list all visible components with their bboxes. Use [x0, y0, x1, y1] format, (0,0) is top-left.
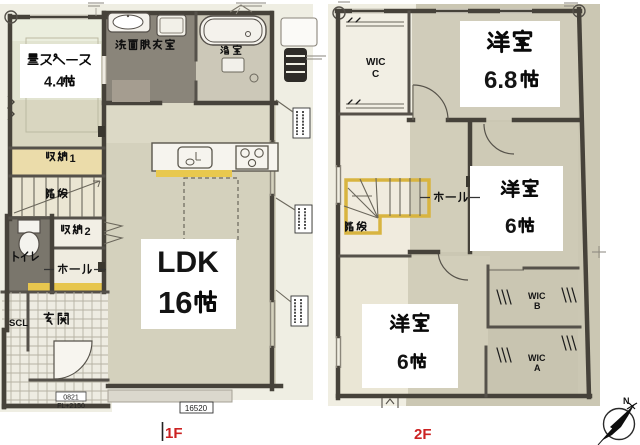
- svg-text:B: B: [534, 301, 541, 311]
- svg-text:C: C: [372, 69, 379, 80]
- svg-text:16: 16: [158, 285, 192, 320]
- svg-text:1: 1: [70, 153, 76, 165]
- svg-text:16520: 16520: [185, 404, 208, 413]
- svg-text:2: 2: [85, 226, 91, 238]
- svg-text:4.4: 4.4: [44, 75, 64, 91]
- svg-text:6.8: 6.8: [484, 67, 517, 94]
- svg-text:6: 6: [397, 351, 409, 374]
- svg-text:SCL: SCL: [9, 318, 28, 329]
- svg-text:N: N: [623, 396, 630, 406]
- svg-text:6: 6: [505, 215, 517, 238]
- svg-text:FL+2150: FL+2150: [57, 403, 85, 410]
- svg-text:1F: 1F: [165, 425, 183, 442]
- svg-text:A: A: [534, 363, 541, 373]
- svg-text:WIC: WIC: [528, 291, 546, 301]
- svg-text:0821: 0821: [63, 395, 79, 402]
- svg-text:2F: 2F: [414, 426, 432, 443]
- svg-text:WIC: WIC: [366, 57, 385, 68]
- svg-text:WIC: WIC: [528, 353, 546, 363]
- svg-text:LDK: LDK: [157, 246, 219, 279]
